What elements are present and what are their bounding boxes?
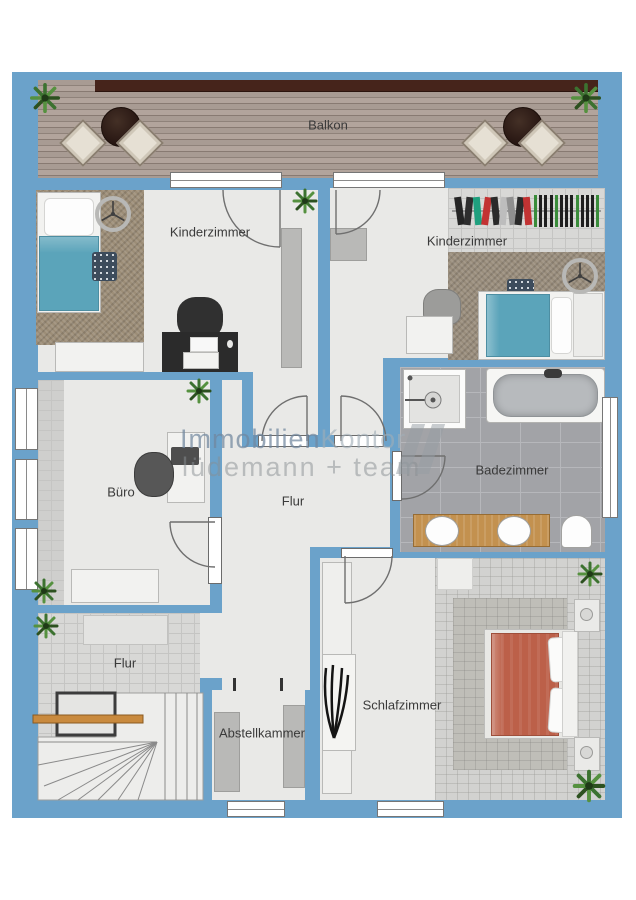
window-buero-1 xyxy=(15,388,38,450)
room-label-kinderzimmer-right: Kinderzimmer xyxy=(427,234,507,249)
room-flur-center xyxy=(222,547,310,690)
floorplan-canvas: Balkon Kinderzimmer Kinderzimmer Büro Fl… xyxy=(0,0,636,900)
balcony-railing xyxy=(95,80,598,92)
pillow xyxy=(44,198,94,236)
kinderzimmer-left-door-nook xyxy=(253,372,318,435)
room-label-flur-bottom: Flur xyxy=(114,656,136,671)
door-frame-schlafzimmer xyxy=(341,548,393,558)
lamp xyxy=(580,608,593,621)
wardrobe xyxy=(281,228,302,368)
window-badezimmer xyxy=(602,397,618,518)
room-label-balkon: Balkon xyxy=(308,118,348,133)
room-label-badezimmer: Badezimmer xyxy=(476,463,549,478)
mouse xyxy=(227,340,233,348)
toilet xyxy=(561,515,592,548)
cabinet xyxy=(83,615,168,645)
window-abstellkammer xyxy=(227,801,285,817)
keyboard-tray xyxy=(183,352,219,369)
duvet xyxy=(39,236,99,311)
room-flur-center xyxy=(222,447,390,547)
window-buero-2 xyxy=(15,459,38,520)
opening-abstellkammer xyxy=(233,678,283,691)
room-flur-center xyxy=(200,613,222,678)
pouf xyxy=(92,252,117,281)
dresser xyxy=(55,342,144,372)
dresser xyxy=(71,569,159,603)
room-label-buero: Büro xyxy=(107,485,134,500)
sink xyxy=(497,516,531,546)
shower-tray xyxy=(409,375,460,423)
room-label-abstellkammer: Abstellkammer xyxy=(219,726,305,741)
lamp xyxy=(580,746,593,759)
headboard xyxy=(562,631,578,737)
door-frame-kinderzimmer-right xyxy=(334,435,384,447)
sideboard xyxy=(322,654,356,751)
door-frame-buero xyxy=(208,517,222,584)
door-frame-kinderzimmer-left xyxy=(258,435,309,447)
monitor xyxy=(171,447,199,465)
desk-paper xyxy=(190,337,218,352)
cabinet xyxy=(330,228,367,261)
shelf xyxy=(214,712,240,792)
bathtub-basin xyxy=(493,374,598,417)
sink xyxy=(425,516,459,546)
shelf xyxy=(283,705,305,788)
duvet xyxy=(486,294,550,357)
window-balcony-door-right xyxy=(333,172,445,188)
headboard xyxy=(573,293,603,357)
window-balcony-door-left xyxy=(170,172,282,188)
room-label-flur: Flur xyxy=(282,494,304,509)
bathtub-faucet xyxy=(544,369,562,378)
window-schlafzimmer xyxy=(377,801,444,817)
desk xyxy=(406,316,453,354)
office-chair xyxy=(134,452,174,497)
room-label-schlafzimmer: Schlafzimmer xyxy=(363,698,442,713)
pillow xyxy=(551,297,572,354)
door-frame-badezimmer xyxy=(392,451,402,501)
cabinet xyxy=(437,558,473,590)
kinderzimmer-right-door-nook xyxy=(330,358,383,435)
room-label-kinderzimmer-left: Kinderzimmer xyxy=(170,225,250,240)
window-buero-3 xyxy=(15,528,38,590)
sloped-ceiling-strip xyxy=(38,380,64,605)
